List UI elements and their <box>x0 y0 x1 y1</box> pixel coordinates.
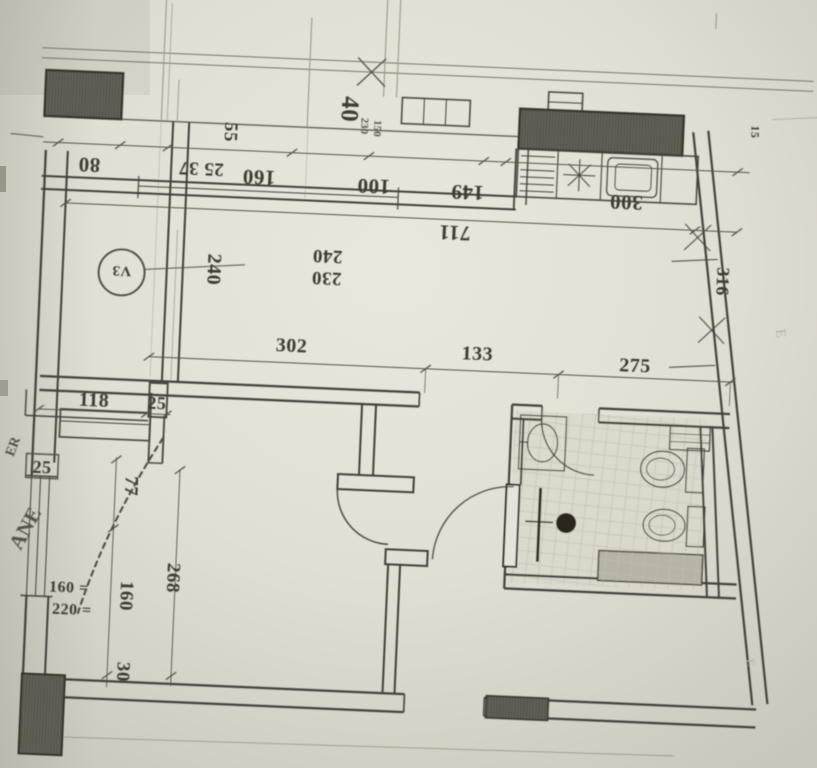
dim-240: 240 <box>312 245 343 267</box>
dim-55: 55 <box>219 122 241 143</box>
vent-circle-label: V3 <box>112 262 132 279</box>
wall-pier-topleft <box>44 70 123 119</box>
dim-150-small: 150 <box>371 120 384 138</box>
dim-15: 15 <box>748 125 763 139</box>
dim-160-top: 160 <box>242 165 276 190</box>
dim-240-vertical: 240 <box>202 253 225 285</box>
dim-118: 118 <box>78 389 109 412</box>
dim-160-vertical: 160 <box>115 580 137 611</box>
dim-133: 133 <box>461 342 493 365</box>
floorplan-photo: 80 25 37 160 100 149 300 711 55 40 230 1… <box>0 0 817 768</box>
wall-pier-bottomleft <box>19 673 65 755</box>
window-width-label: 160 = <box>49 579 89 598</box>
dim-268: 268 <box>162 562 184 593</box>
dim-77: 77 <box>120 476 142 497</box>
wall-hatched-topright <box>518 109 684 156</box>
bathtub <box>598 550 703 585</box>
dim-25-a: 25 <box>147 393 167 414</box>
dim-25-b: 25 <box>32 457 52 478</box>
dim-300: 300 <box>609 190 643 215</box>
photo-edge-mark <box>0 166 6 192</box>
dim-230-small: 230 <box>358 117 371 135</box>
dim-711-total: 711 <box>438 220 471 245</box>
dim-302: 302 <box>275 334 307 357</box>
photo-edge-mark <box>0 380 8 396</box>
dim-230: 230 <box>311 267 342 289</box>
floorplan-drawing: 80 25 37 160 100 149 300 711 55 40 230 1… <box>0 0 817 768</box>
dim-80: 80 <box>78 152 101 177</box>
dim-30: 30 <box>112 661 134 682</box>
radiator <box>486 696 549 721</box>
dim-275: 275 <box>619 354 651 377</box>
dim-316: 316 <box>712 267 733 296</box>
window-sill-label: 220 = <box>52 601 92 620</box>
dim-2537: 25 37 <box>178 157 224 180</box>
dim-149: 149 <box>450 180 484 205</box>
dim-100: 100 <box>357 174 391 199</box>
